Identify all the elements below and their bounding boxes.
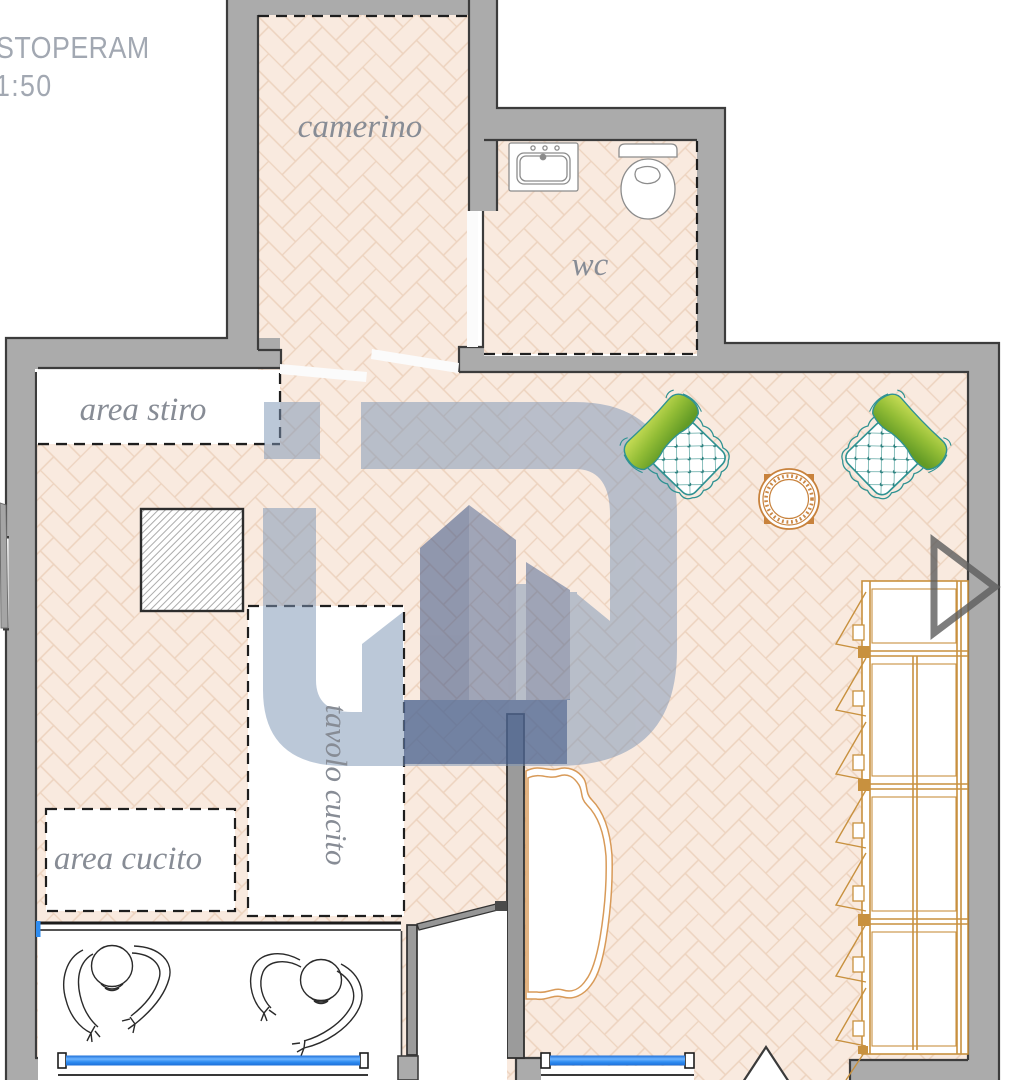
svg-text:wc: wc xyxy=(572,247,609,283)
svg-text:tavolo cucito: tavolo cucito xyxy=(319,705,354,866)
svg-text:1:50: 1:50 xyxy=(0,69,53,103)
svg-text:area cucito: area cucito xyxy=(54,841,202,877)
svg-text:STOPERAM: STOPERAM xyxy=(0,31,150,65)
svg-text:area stiro: area stiro xyxy=(80,392,207,428)
svg-text:camerino: camerino xyxy=(298,109,423,145)
